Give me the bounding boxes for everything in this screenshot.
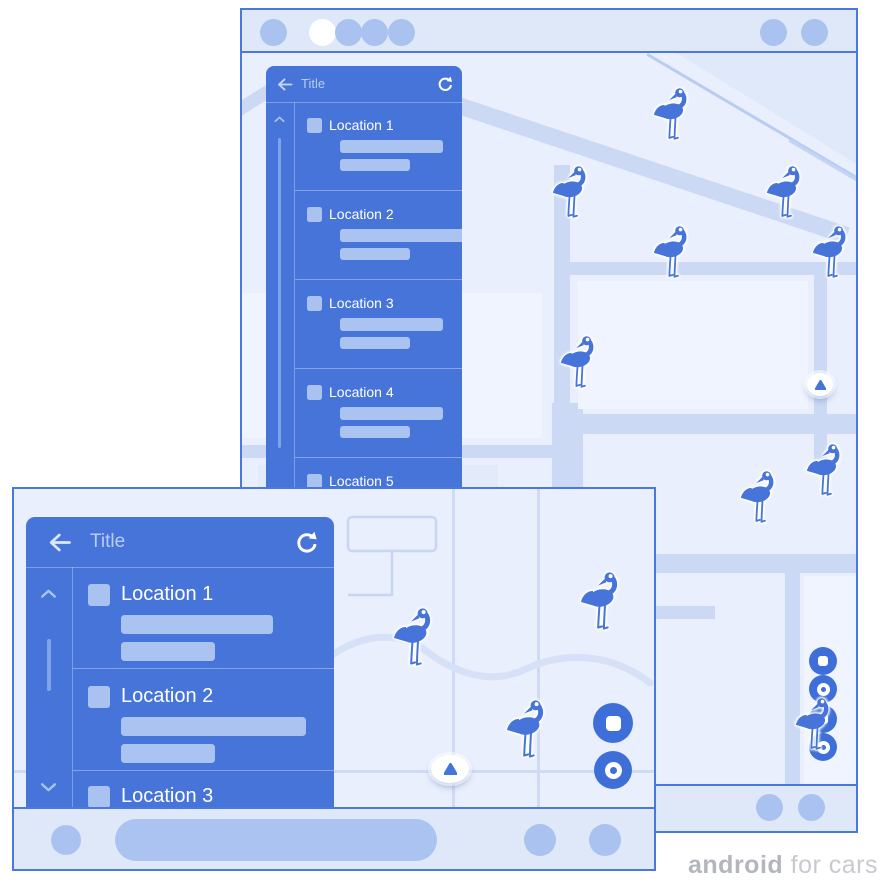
panel-title: Title — [301, 66, 325, 102]
panel-header: Title — [266, 66, 462, 103]
system-button[interactable] — [388, 19, 415, 46]
list-item[interactable]: Location 2 — [73, 669, 334, 771]
map-action-button-square[interactable] — [593, 703, 633, 743]
portrait-top-system-bar — [242, 10, 856, 53]
watermark-brand: android — [688, 851, 783, 879]
place-icon — [88, 786, 110, 808]
list-item-label: Location 1 — [121, 583, 213, 606]
list-item-label: Location 4 — [329, 384, 394, 400]
list-item-label: Location 2 — [329, 206, 394, 222]
system-button[interactable] — [756, 794, 783, 821]
back-button[interactable] — [277, 78, 293, 91]
place-icon — [307, 296, 322, 311]
place-icon — [88, 686, 110, 708]
refresh-icon — [295, 531, 318, 554]
place-icon — [307, 385, 322, 400]
square-icon — [606, 716, 621, 731]
android-for-cars-watermark: android for cars — [688, 851, 878, 880]
map-marker-flamingo[interactable] — [653, 223, 689, 281]
map-action-button-ring[interactable] — [594, 751, 632, 789]
map-marker-flamingo[interactable] — [806, 441, 842, 499]
chevron-down-icon[interactable] — [40, 782, 57, 792]
placeholder-bar — [340, 140, 443, 153]
refresh-icon — [437, 76, 453, 92]
ring-icon — [817, 683, 830, 696]
system-button[interactable] — [361, 19, 388, 46]
scrollbar-thumb[interactable] — [278, 138, 281, 448]
placeholder-bar — [340, 407, 443, 420]
system-button[interactable] — [51, 825, 81, 855]
placeholder-bar — [121, 717, 306, 736]
place-list-panel: Title Location 1 — [266, 66, 462, 498]
placeholder-bar — [121, 744, 215, 763]
list-item[interactable]: Location 2 — [295, 191, 462, 280]
map-marker-flamingo[interactable] — [560, 333, 596, 391]
system-button[interactable] — [335, 19, 362, 46]
panel-header: Title — [26, 517, 334, 568]
placeholder-bar — [340, 337, 410, 349]
square-icon — [818, 656, 828, 666]
chevron-up-icon[interactable] — [40, 589, 57, 599]
list-item[interactable]: Location 1 — [295, 102, 462, 191]
landscape-device-frame: Title Location 1 — [12, 487, 656, 871]
placeholder-bar — [121, 642, 215, 661]
list-item-label: Location 3 — [121, 785, 213, 808]
scroll-rail — [266, 102, 295, 498]
placeholder-bar — [121, 615, 273, 634]
compass-button[interactable] — [807, 373, 833, 396]
place-list: Location 1 Location 2 Loca — [295, 102, 462, 498]
place-icon — [307, 207, 322, 222]
chevron-up-icon[interactable] — [274, 116, 285, 123]
place-icon — [88, 584, 110, 606]
compass-button[interactable] — [431, 755, 469, 783]
scroll-rail — [26, 567, 73, 808]
list-item[interactable]: Location 3 — [295, 280, 462, 369]
scrollbar-thumb[interactable] — [47, 639, 51, 691]
map-marker-flamingo[interactable] — [766, 163, 802, 221]
system-button[interactable] — [589, 824, 621, 856]
map-marker-flamingo[interactable] — [653, 85, 689, 143]
placeholder-bar — [340, 248, 410, 260]
map-block — [578, 281, 808, 409]
landscape-bottom-system-bar — [14, 807, 654, 869]
placeholder-bar — [340, 426, 410, 438]
list-item-label: Location 3 — [329, 295, 394, 311]
system-button[interactable] — [260, 19, 287, 46]
system-pill-placeholder — [115, 819, 437, 861]
map-marker-flamingo[interactable] — [552, 163, 588, 221]
system-button[interactable] — [798, 794, 825, 821]
back-arrow-icon — [48, 533, 72, 552]
place-icon — [307, 118, 322, 133]
map-road — [785, 573, 800, 786]
map-marker-flamingo[interactable] — [506, 698, 546, 760]
placeholder-bar — [340, 159, 410, 171]
list-item[interactable]: Location 3 — [73, 771, 334, 808]
place-list-panel: Title Location 1 — [26, 517, 334, 808]
map-marker-flamingo[interactable] — [795, 695, 831, 753]
system-button-active[interactable] — [309, 19, 336, 46]
panel-title: Title — [90, 517, 125, 567]
map-marker-flamingo[interactable] — [393, 606, 433, 668]
watermark-suffix: for cars — [783, 851, 878, 879]
list-item-label: Location 1 — [329, 117, 394, 133]
system-button[interactable] — [801, 19, 828, 46]
map-marker-flamingo[interactable] — [812, 223, 848, 281]
list-item[interactable]: Location 1 — [73, 567, 334, 669]
back-button[interactable] — [48, 533, 72, 552]
placeholder-bar — [340, 229, 462, 242]
place-list: Location 1 Location 2 Loca — [73, 567, 334, 808]
map-road — [583, 414, 856, 434]
map-marker-flamingo[interactable] — [580, 570, 620, 632]
list-item[interactable]: Location 4 — [295, 369, 462, 458]
placeholder-bar — [340, 318, 443, 331]
ring-icon — [605, 762, 622, 779]
system-button[interactable] — [524, 824, 556, 856]
navigation-triangle-icon — [444, 763, 457, 775]
back-arrow-icon — [277, 78, 293, 91]
navigation-triangle-icon — [815, 380, 826, 390]
refresh-button[interactable] — [437, 76, 453, 92]
map-action-button-square[interactable] — [809, 647, 837, 675]
refresh-button[interactable] — [295, 531, 318, 554]
system-button[interactable] — [760, 19, 787, 46]
map-marker-flamingo[interactable] — [740, 468, 776, 526]
list-item-label: Location 2 — [121, 685, 213, 708]
